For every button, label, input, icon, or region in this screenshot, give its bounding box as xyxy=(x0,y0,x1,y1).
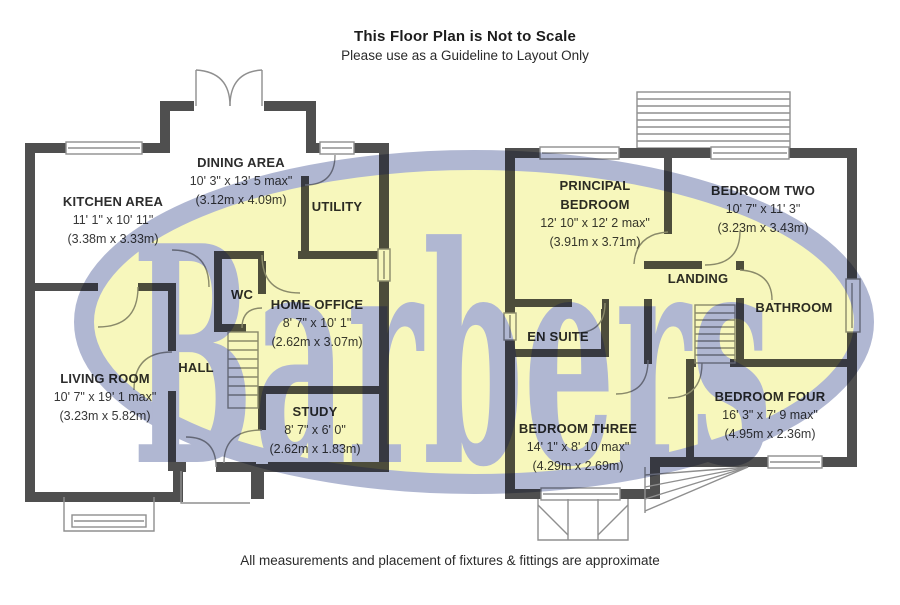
room-label-landing: LANDING xyxy=(668,269,729,288)
room-size-ft: 16' 3" x 7' 9 max" xyxy=(715,406,826,425)
room-size-ft: 10' 7" x 19' 1 max" xyxy=(54,388,157,407)
floorplan-page: This Floor Plan is Not to Scale Please u… xyxy=(0,0,900,600)
room-label-wc: WC xyxy=(231,285,253,304)
room-size-m: (3.38m x 3.33m) xyxy=(63,230,163,249)
room-size-m: (2.62m x 1.83m) xyxy=(269,440,360,459)
room-size-m: (2.62m x 3.07m) xyxy=(271,333,363,352)
room-size-m: (3.23m x 3.43m) xyxy=(711,219,815,238)
room-label-kitchen-area: KITCHEN AREA 11' 1" x 10' 11" (3.38m x 3… xyxy=(63,192,163,249)
room-label-principal-bedroom: PRINCIPAL BEDROOM 12' 10" x 12' 2 max" (… xyxy=(539,176,651,252)
room-label-utility: UTILITY xyxy=(312,197,363,216)
room-size-ft: 10' 3" x 13' 5 max" xyxy=(190,172,293,191)
room-size-ft: 8' 7" x 10' 1" xyxy=(271,314,363,333)
room-size-m: (3.12m x 4.09m) xyxy=(190,191,293,210)
room-size-ft: 10' 7" x 11' 3" xyxy=(711,200,815,219)
room-label-dining-area: DINING AREA 10' 3" x 13' 5 max" (3.12m x… xyxy=(190,153,293,210)
room-label-home-office: HOME OFFICE 8' 7" x 10' 1" (2.62m x 3.07… xyxy=(271,295,363,352)
room-size-ft: 12' 10" x 12' 2 max" xyxy=(539,214,651,233)
room-label-living-room: LIVING ROOM 10' 7" x 19' 1 max" (3.23m x… xyxy=(54,369,157,426)
room-size-m: (4.29m x 2.69m) xyxy=(519,457,637,476)
room-label-bathroom: BATHROOM xyxy=(755,298,832,317)
room-label-bedroom-four: BEDROOM FOUR 16' 3" x 7' 9 max" (4.95m x… xyxy=(715,387,826,444)
room-label-bedroom-three: BEDROOM THREE 14' 1" x 8' 10 max" (4.29m… xyxy=(519,419,637,476)
room-size-ft: 14' 1" x 8' 10 max" xyxy=(519,438,637,457)
room-label-en-suite: EN SUITE xyxy=(527,327,589,346)
disclaimer-note: All measurements and placement of fixtur… xyxy=(0,553,900,568)
room-size-m: (4.95m x 2.36m) xyxy=(715,425,826,444)
room-label-study: STUDY 8' 7" x 6' 0" (2.62m x 1.83m) xyxy=(269,402,360,459)
room-labels-layer: KITCHEN AREA 11' 1" x 10' 11" (3.38m x 3… xyxy=(0,0,900,600)
room-size-ft: 11' 1" x 10' 11" xyxy=(63,211,163,230)
room-size-ft: 8' 7" x 6' 0" xyxy=(269,421,360,440)
room-label-bedroom-two: BEDROOM TWO 10' 7" x 11' 3" (3.23m x 3.4… xyxy=(711,181,815,238)
room-label-hall: HALL xyxy=(178,358,213,377)
room-size-m: (3.91m x 3.71m) xyxy=(539,233,651,252)
room-size-m: (3.23m x 5.82m) xyxy=(54,407,157,426)
